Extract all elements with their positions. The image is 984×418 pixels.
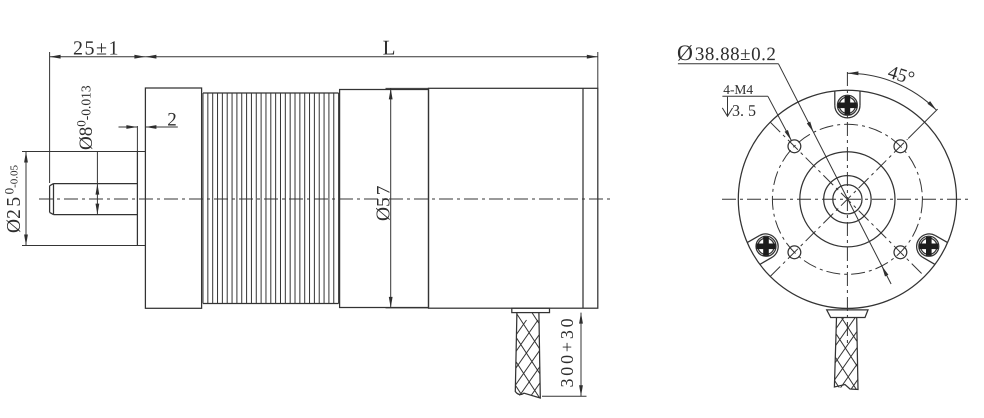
svg-text:25±1: 25±1	[73, 37, 120, 59]
svg-text:Ø57: Ø57	[374, 183, 395, 221]
svg-text:3. 5: 3. 5	[732, 103, 756, 120]
svg-text:300+30: 300+30	[557, 316, 577, 388]
svg-text:2: 2	[167, 109, 177, 130]
svg-text:Ø80-0.013: Ø80-0.013	[74, 85, 98, 150]
svg-text:Ø250-0.05: Ø250-0.05	[2, 164, 26, 233]
svg-text:45°: 45°	[885, 62, 917, 90]
svg-text:Ø38.88±0.2: Ø38.88±0.2	[677, 40, 776, 65]
svg-text:L: L	[383, 35, 396, 59]
svg-text:4-M4: 4-M4	[723, 82, 753, 97]
